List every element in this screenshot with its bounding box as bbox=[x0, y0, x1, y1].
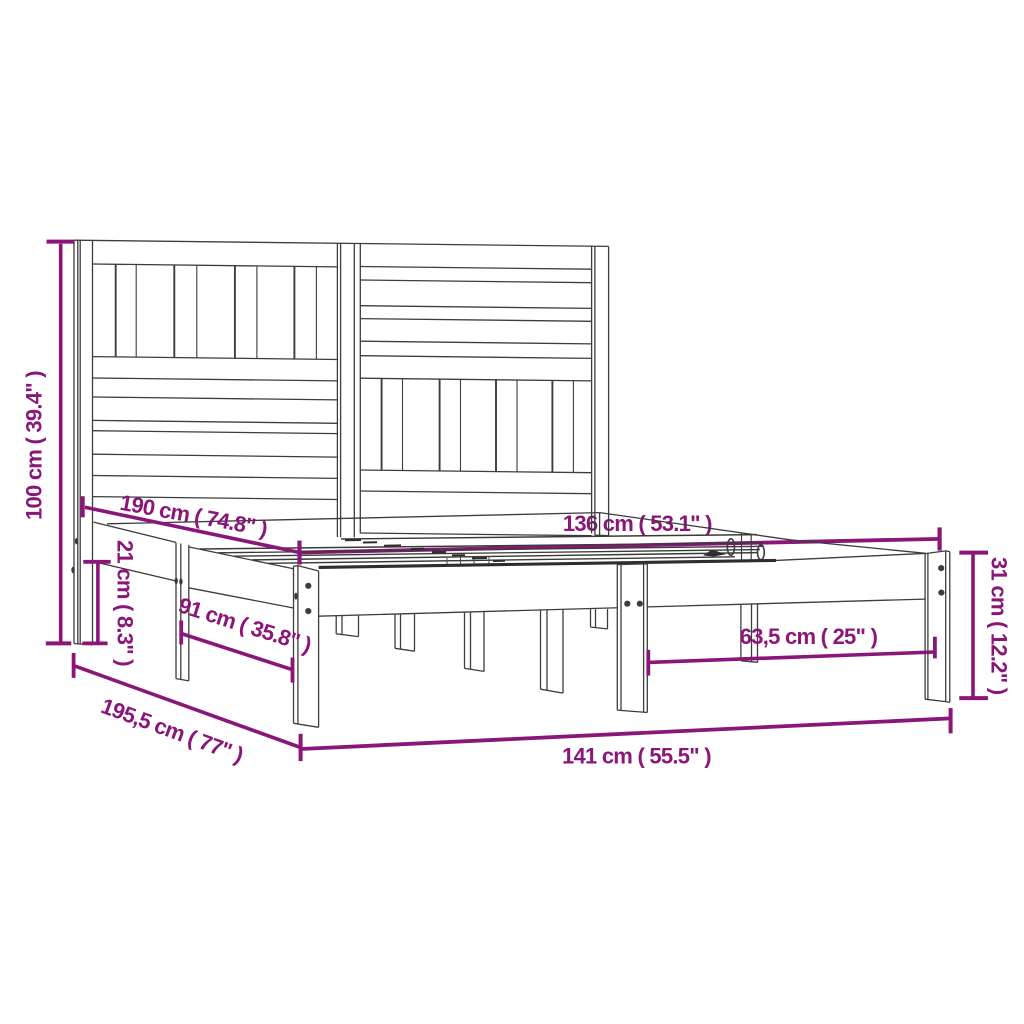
svg-text:21 cm ( 8.3" ): 21 cm ( 8.3" ) bbox=[113, 540, 138, 666]
svg-text:63,5 cm ( 25" ): 63,5 cm ( 25" ) bbox=[740, 624, 878, 649]
svg-text:31 cm ( 12.2" ): 31 cm ( 12.2" ) bbox=[987, 557, 1012, 695]
svg-text:136 cm ( 53.1" ): 136 cm ( 53.1" ) bbox=[563, 511, 712, 536]
svg-text:100 cm ( 39.4" ): 100 cm ( 39.4" ) bbox=[22, 371, 47, 520]
svg-text:141 cm ( 55.5" ): 141 cm ( 55.5" ) bbox=[562, 744, 711, 769]
